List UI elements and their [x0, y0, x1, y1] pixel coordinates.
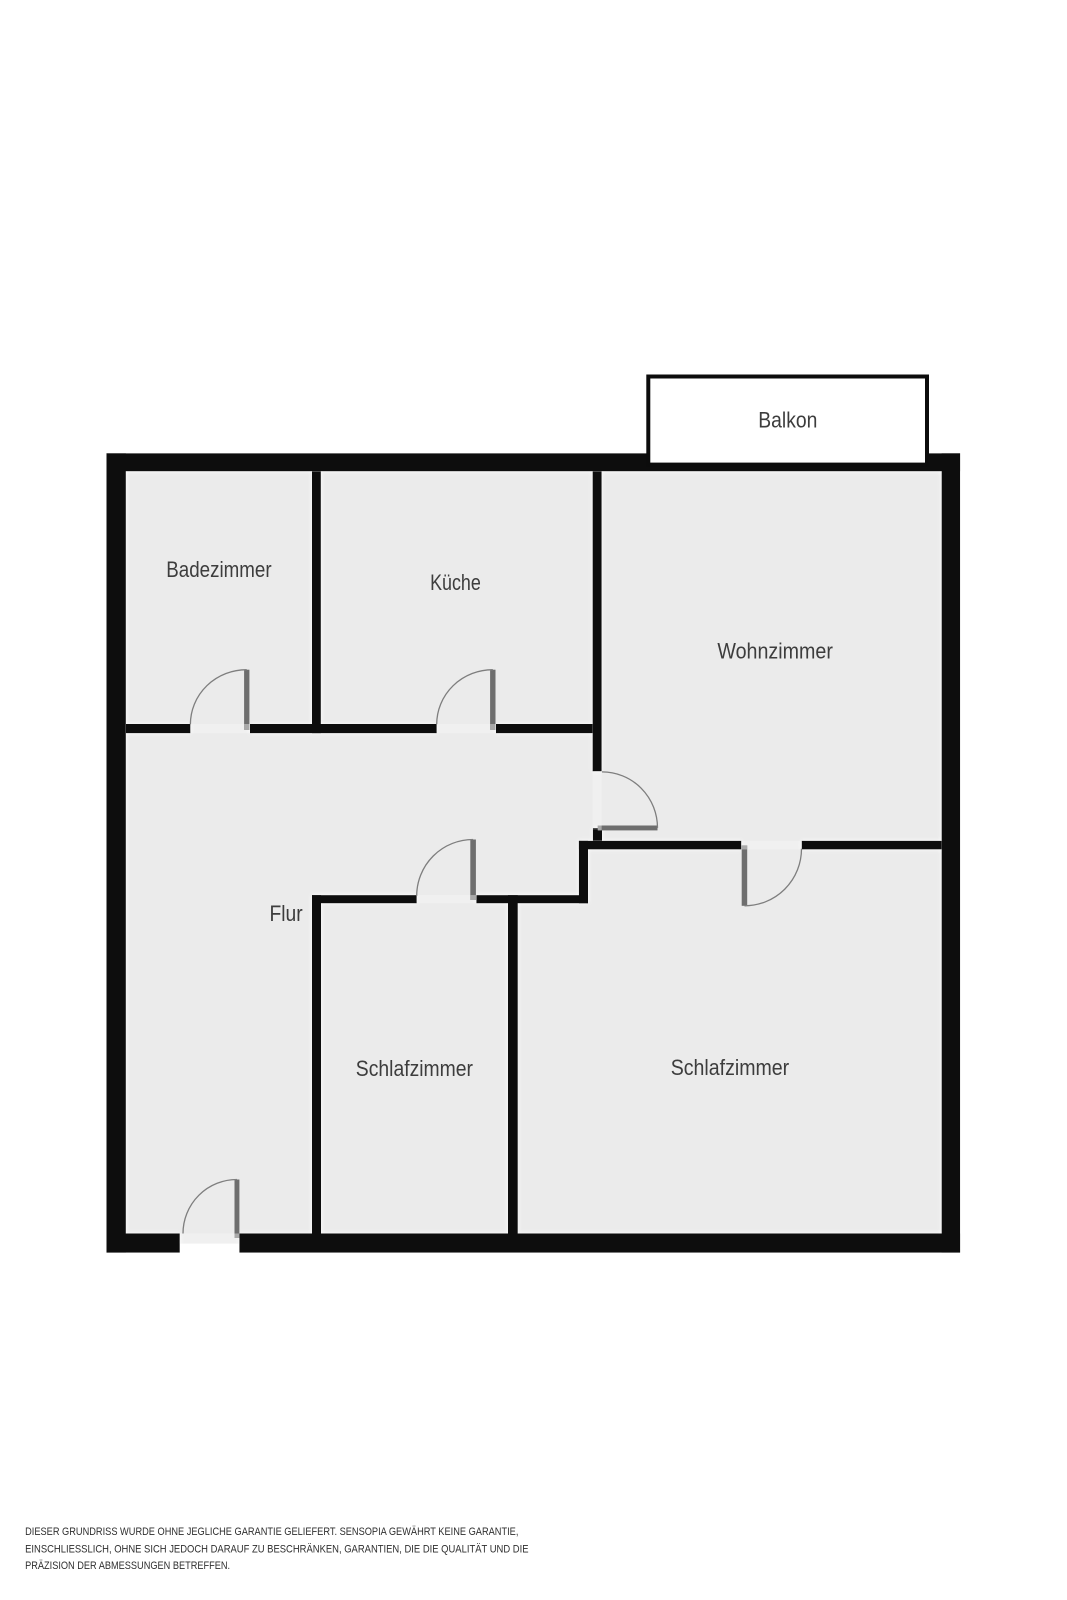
svg-text:Küche: Küche	[430, 570, 481, 595]
svg-text:DIESER GRUNDRISS WURDE OHNE JE: DIESER GRUNDRISS WURDE OHNE JEGLICHE GAR…	[25, 1526, 518, 1538]
svg-text:Wohnzimmer: Wohnzimmer	[717, 639, 833, 664]
svg-text:PRÄZISION DER ABMESSUNGEN BETR: PRÄZISION DER ABMESSUNGEN BETREFFEN.	[25, 1560, 230, 1572]
svg-text:Badezimmer: Badezimmer	[166, 557, 271, 582]
svg-text:Flur: Flur	[270, 901, 303, 926]
svg-text:Schlafzimmer: Schlafzimmer	[356, 1056, 473, 1081]
svg-text:EINSCHLIESSLICH, OHNE SICH JED: EINSCHLIESSLICH, OHNE SICH JEDOCH DARAUF…	[25, 1543, 529, 1555]
svg-text:Balkon: Balkon	[758, 408, 817, 433]
svg-text:Schlafzimmer: Schlafzimmer	[671, 1055, 790, 1080]
